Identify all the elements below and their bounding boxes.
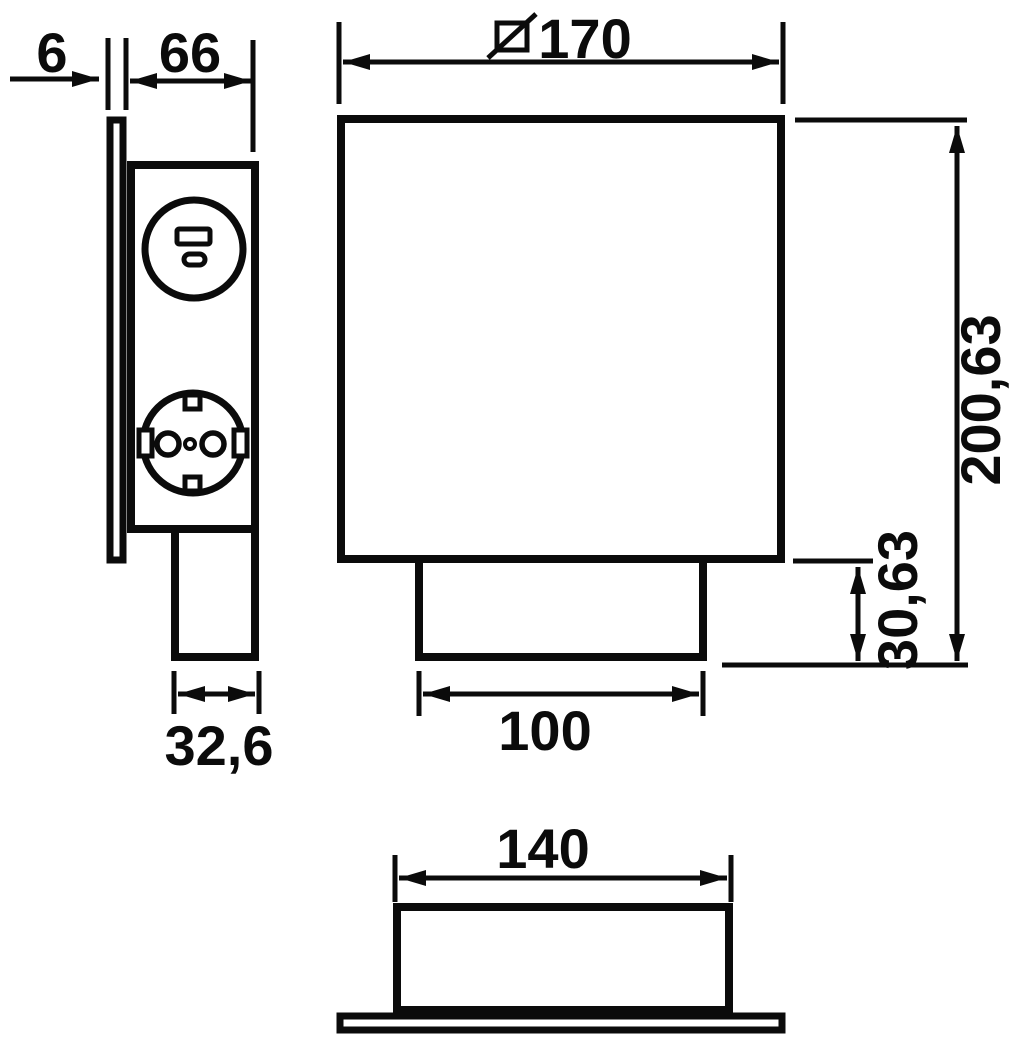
dim-label-housing-depth: 66: [159, 21, 221, 84]
base-plate-bottom: [340, 1016, 782, 1030]
dimension-base-box-width: 140: [395, 817, 731, 902]
bottom-view: [340, 907, 782, 1030]
dim-label-base-box-width: 140: [496, 817, 589, 880]
schuko-center-screw: [185, 439, 195, 449]
dimension-housing-depth: 66: [130, 21, 253, 152]
dim-label-front-width: 170: [538, 7, 631, 70]
dimension-stem-height: 30,63: [793, 530, 929, 670]
schuko-left-pin-hole: [157, 433, 179, 455]
stem-side: [175, 533, 255, 657]
side-view: [110, 120, 255, 657]
dimension-front-width: 170: [339, 7, 783, 104]
schuko-socket-icon: [139, 393, 247, 493]
dim-label-stem-height: 30,63: [866, 530, 929, 670]
front-view: [341, 119, 781, 657]
dim-label-overall-height: 200,63: [949, 314, 1012, 485]
socket-dimension-drawing: 6 66 32,6: [0, 0, 1028, 1048]
usb-socket-face: [145, 200, 243, 298]
usb-a-port-icon: [177, 229, 210, 244]
technical-drawing-canvas: 6 66 32,6: [0, 0, 1028, 1048]
schuko-right-pin-hole: [202, 433, 224, 455]
dimension-stem-width: 100: [419, 671, 703, 762]
mounting-plate-side: [110, 120, 123, 560]
schuko-right-notch: [234, 430, 247, 456]
usb-charging-socket-icon: [145, 200, 243, 298]
schuko-left-notch: [139, 430, 152, 456]
dimension-stem-depth: 32,6: [165, 671, 274, 777]
dimension-plate-thickness: 6: [10, 21, 126, 110]
dim-label-stem-depth: 32,6: [165, 714, 274, 777]
base-box-bottom: [397, 907, 729, 1010]
dim-label-stem-width: 100: [498, 699, 591, 762]
schuko-top-earth-notch: [185, 395, 200, 409]
usb-c-port-icon: [184, 254, 205, 265]
schuko-bottom-earth-notch: [185, 477, 200, 491]
square-diagonal-slash-icon: [488, 14, 536, 58]
front-panel-face: [341, 119, 781, 559]
stem-front: [419, 559, 703, 657]
dim-label-plate-thickness: 6: [36, 21, 67, 84]
